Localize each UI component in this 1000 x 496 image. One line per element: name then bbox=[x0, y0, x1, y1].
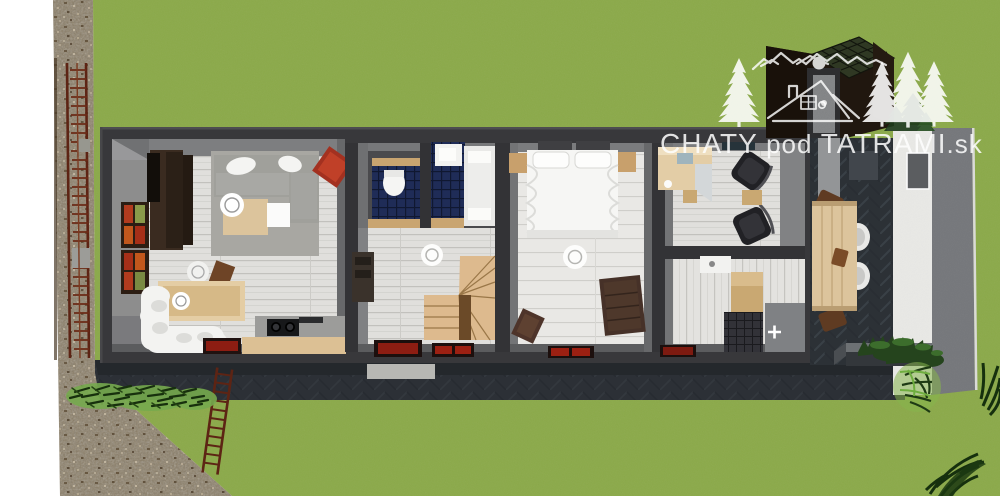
svg-text:CHATY pod TATRAMI.sk: CHATY pod TATRAMI.sk bbox=[660, 128, 983, 159]
